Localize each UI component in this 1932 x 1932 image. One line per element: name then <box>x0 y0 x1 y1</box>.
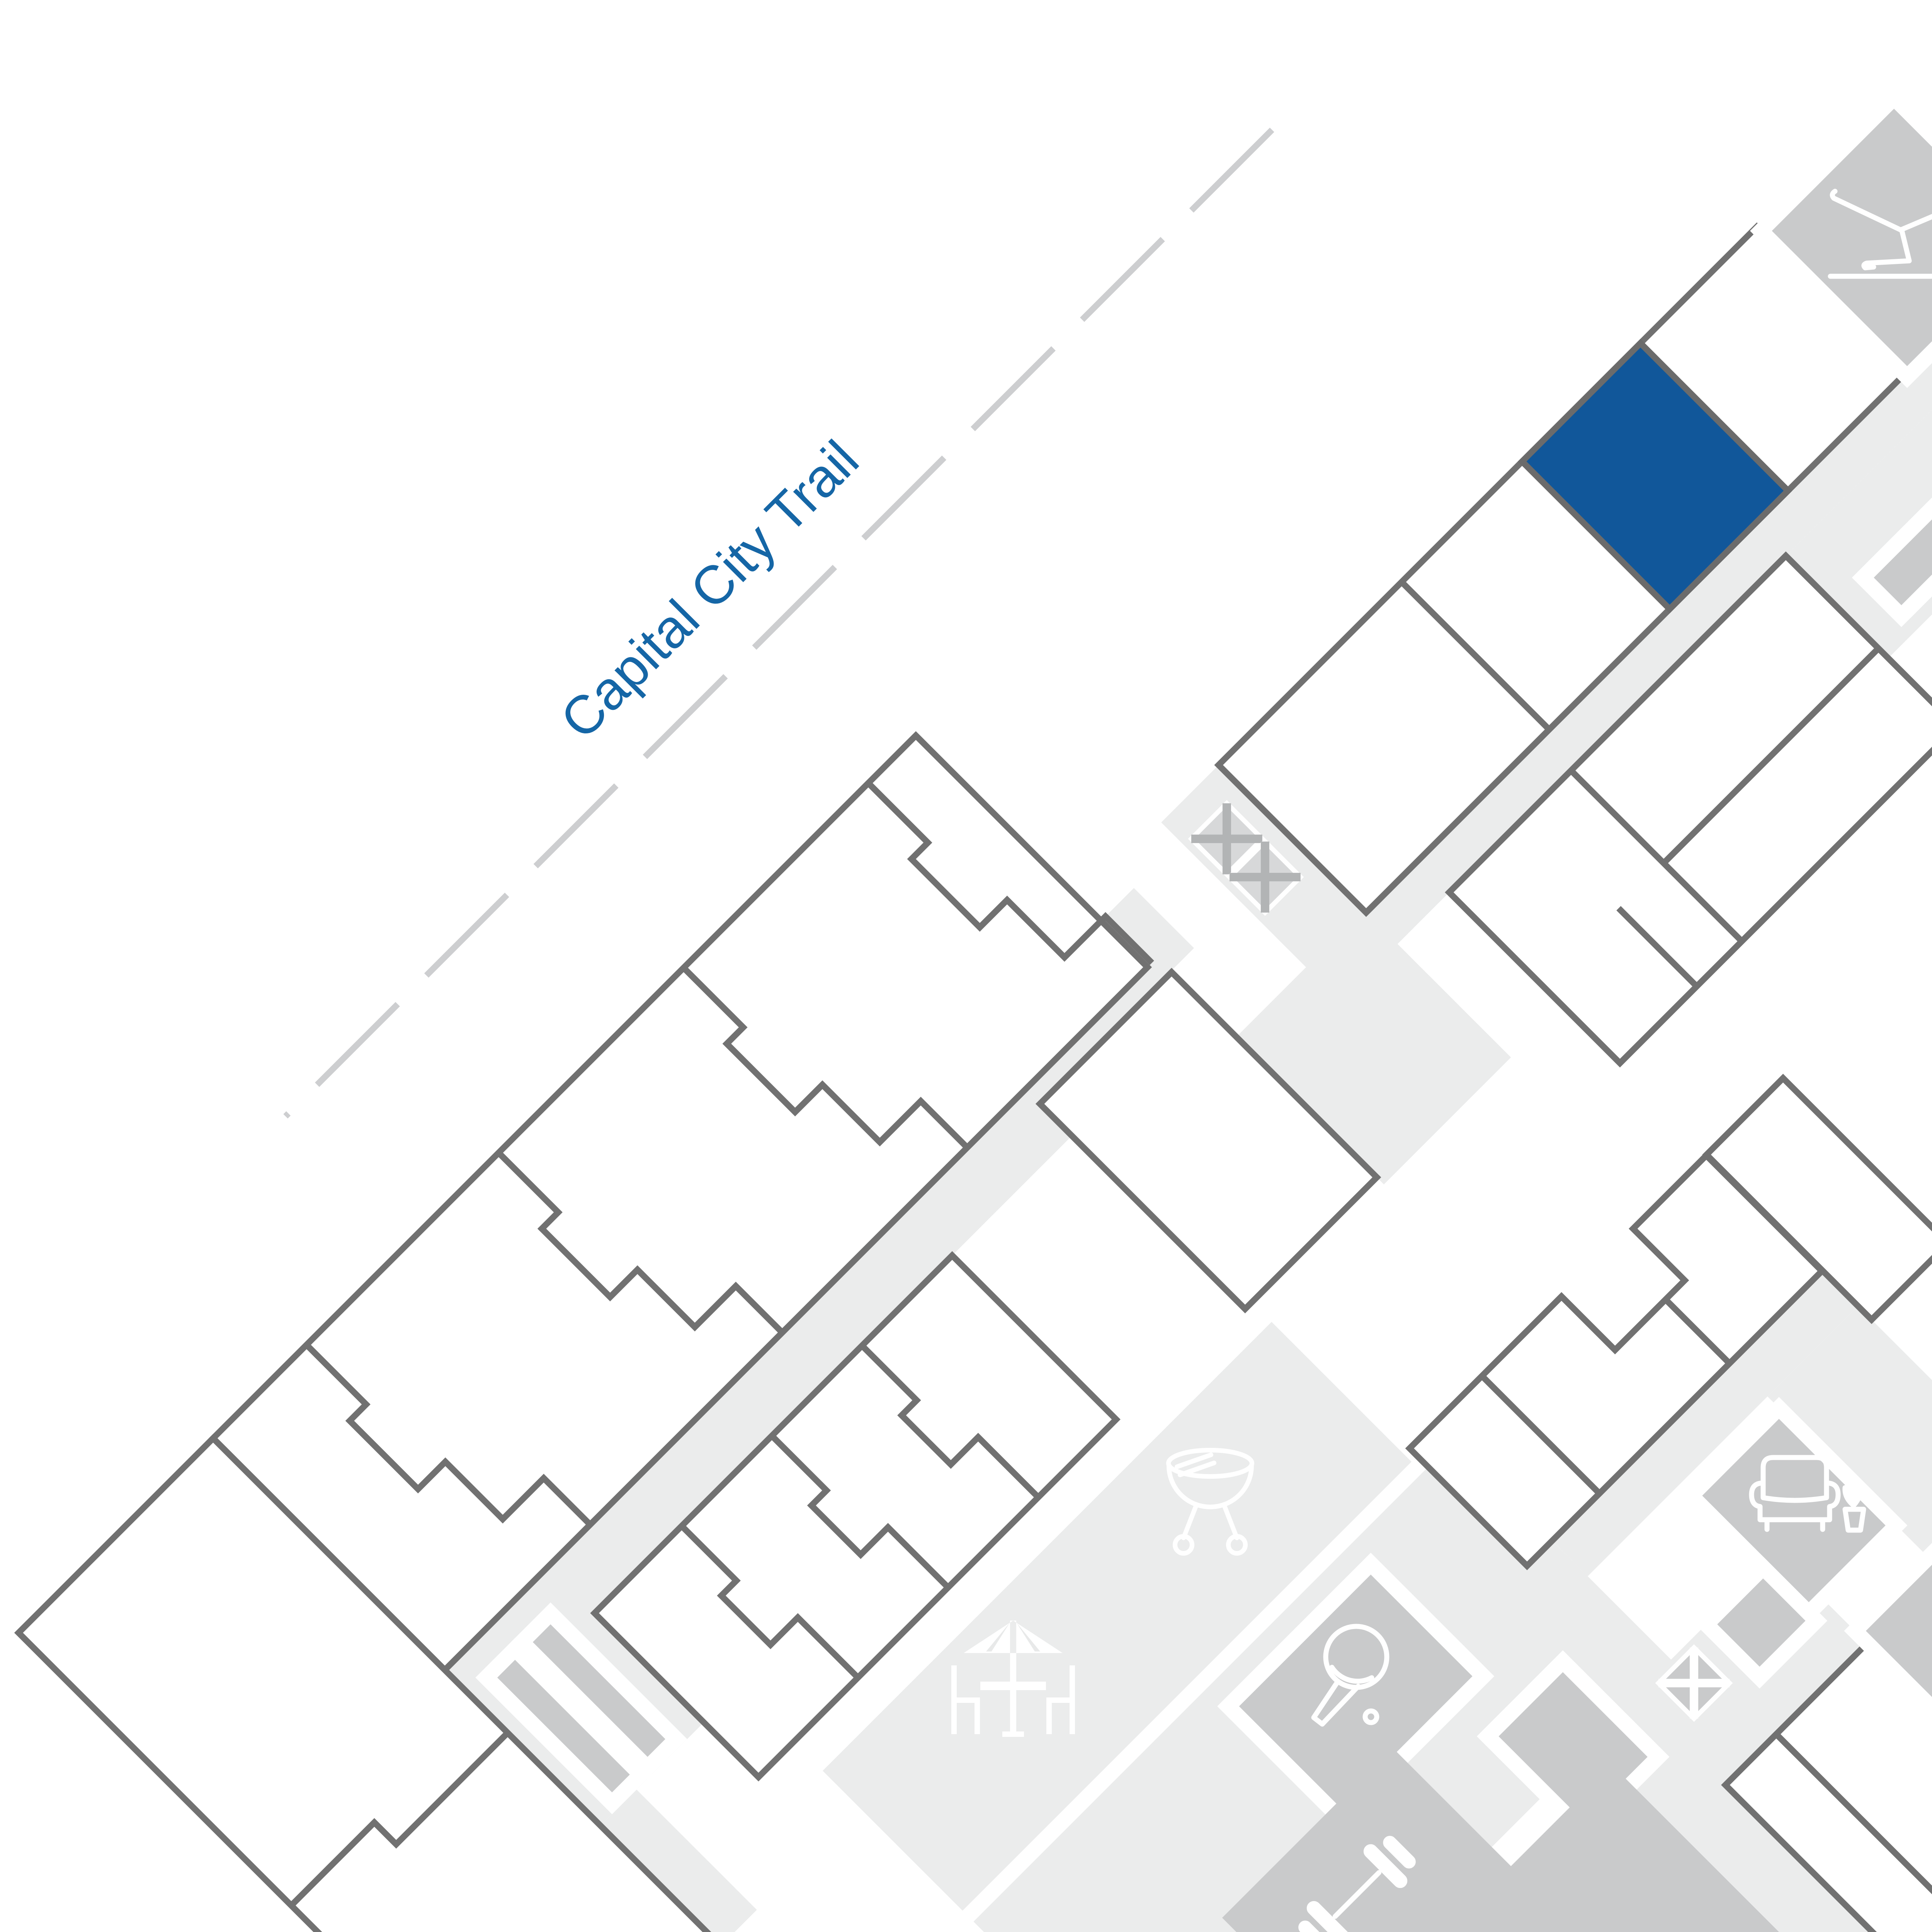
svg-text:Capital City Trail: Capital City Trail <box>549 429 870 750</box>
